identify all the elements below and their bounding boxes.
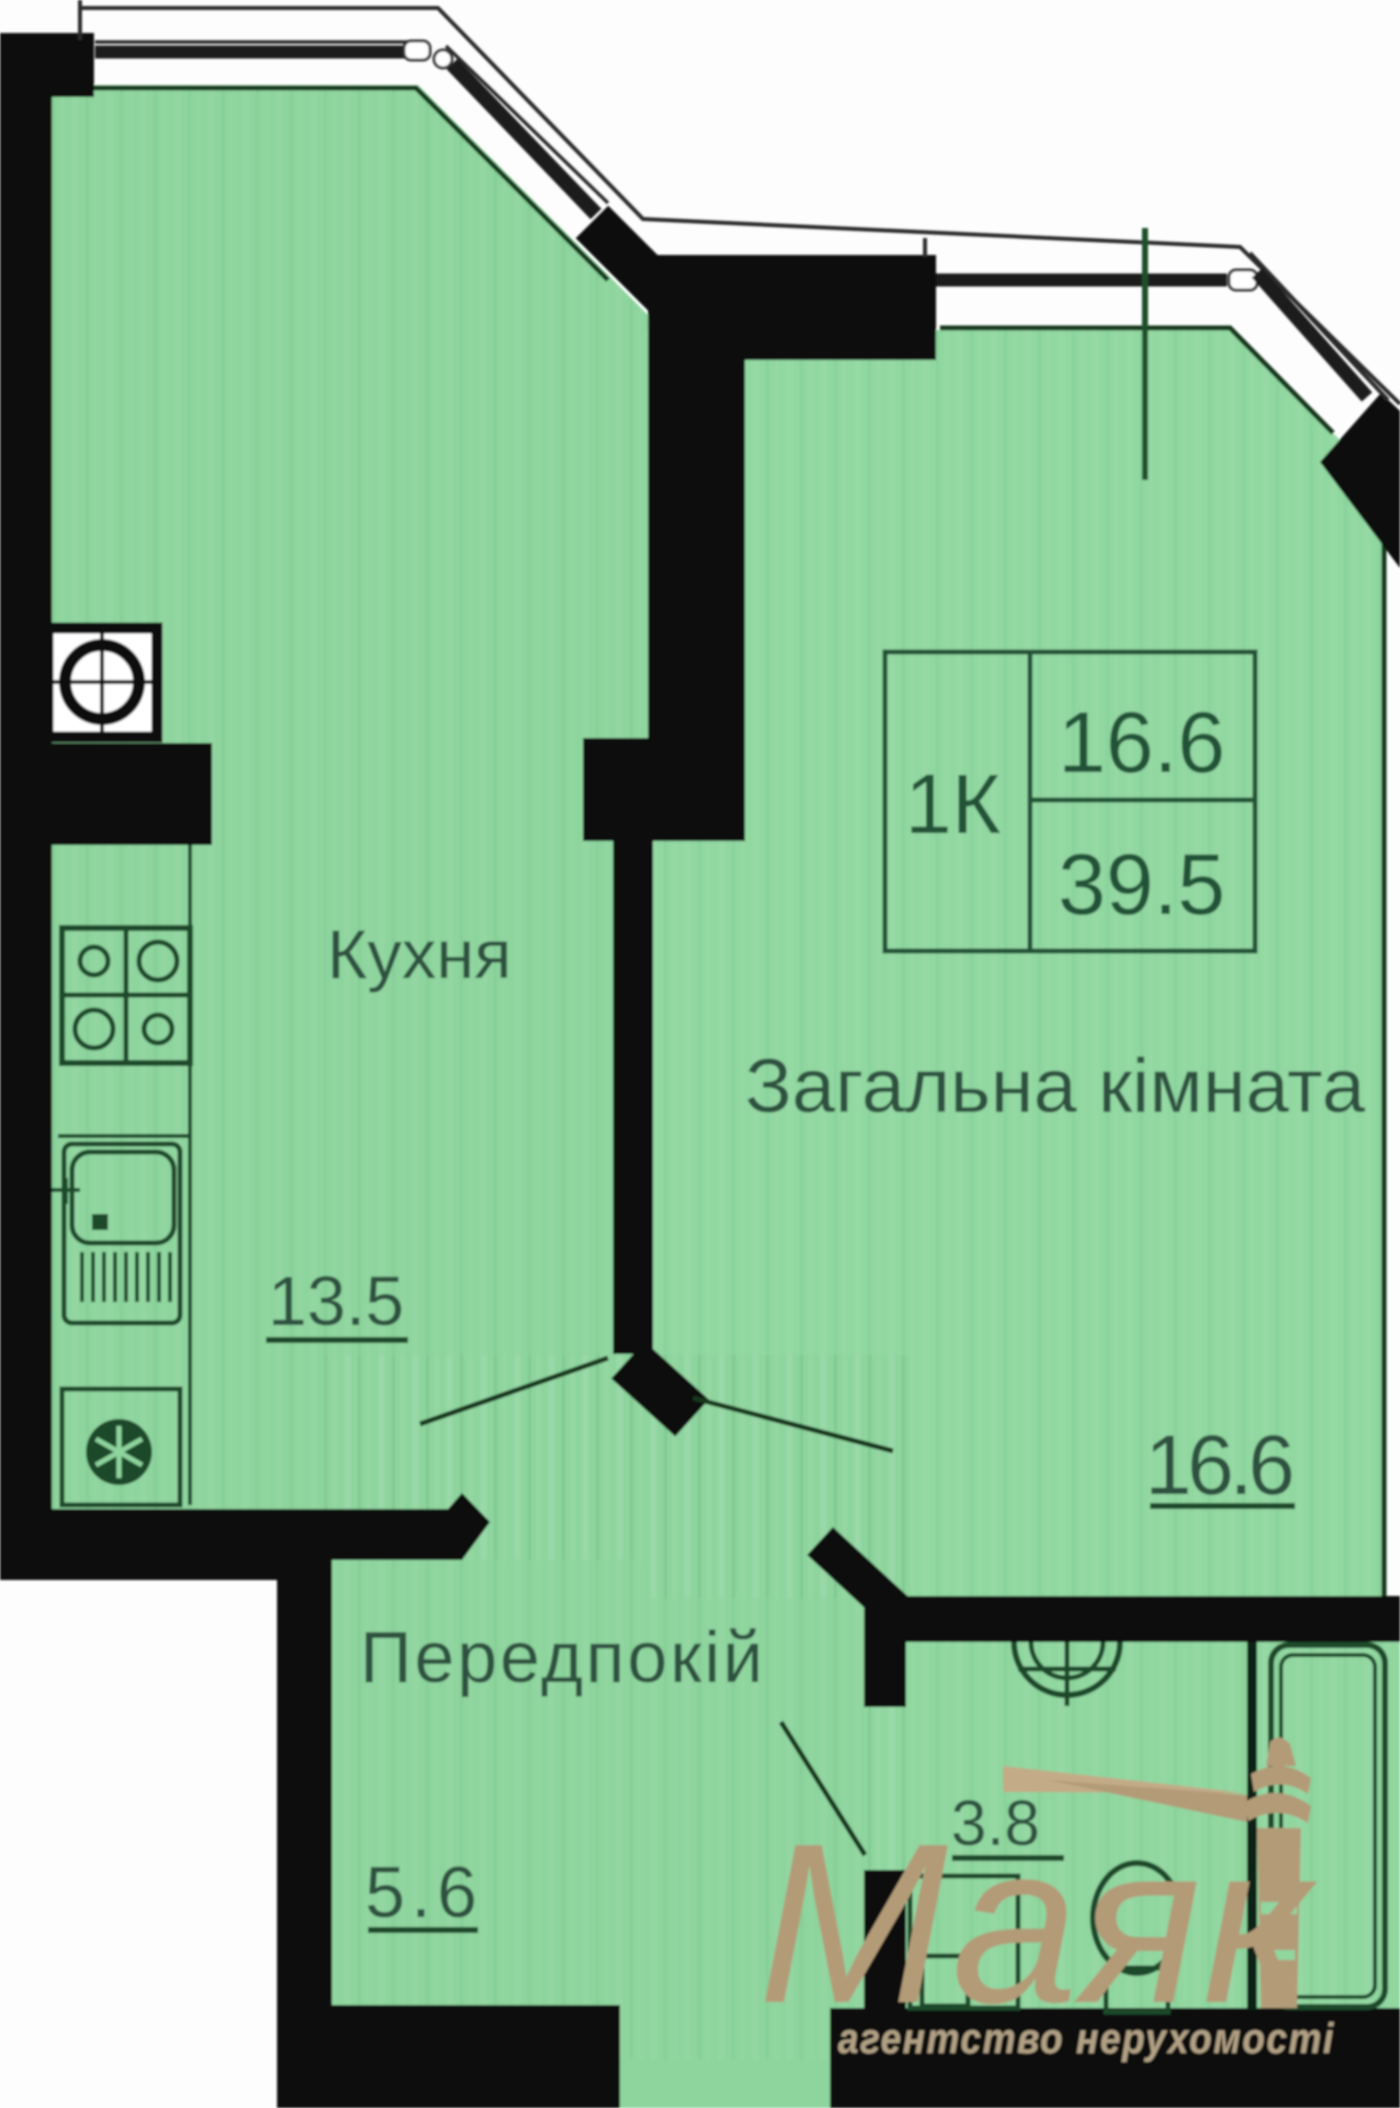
svg-text:агентство нерухомості: агентство нерухомості (838, 2015, 1335, 2063)
svg-text:Кухня: Кухня (327, 916, 512, 993)
svg-text:Маяк: Маяк (758, 1797, 1317, 2051)
svg-text:Загальна кімната: Загальна кімната (745, 1044, 1366, 1129)
svg-text:16.6: 16.6 (1058, 695, 1225, 791)
svg-text:39.5: 39.5 (1058, 837, 1225, 933)
svg-text:5.6: 5.6 (365, 1853, 477, 1933)
svg-text:16.6: 16.6 (1145, 1418, 1295, 1512)
svg-text:13.5: 13.5 (268, 1262, 404, 1340)
svg-text:1К: 1К (905, 757, 1001, 851)
